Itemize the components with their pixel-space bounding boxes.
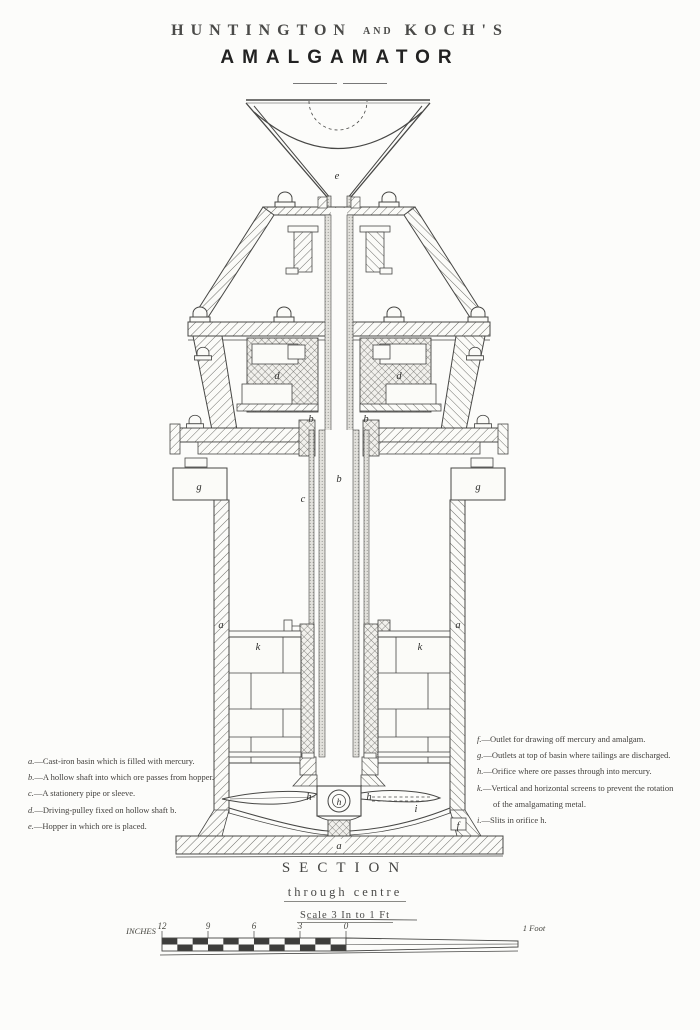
outlet-g-right bbox=[451, 458, 505, 500]
legend-item-c: c.—A stationery pipe or sleeve. bbox=[28, 785, 214, 801]
legend-left: a.—Cast-iron basin which is filled with … bbox=[28, 753, 214, 834]
legend-item-b: b.—A hollow shaft into which ore passes … bbox=[28, 769, 214, 785]
legend-item-g: g.—Outlets at top of basin where tailing… bbox=[477, 747, 673, 763]
label-pipe: c bbox=[301, 494, 306, 505]
label-shaft-bore: b bbox=[336, 474, 341, 485]
legend-item-d: d.—Driving-pulley fixed on hollow shaft … bbox=[28, 802, 214, 818]
legend-item-i: i.—Slits in orifice h. bbox=[477, 812, 673, 828]
label-basin-right: a bbox=[455, 620, 460, 631]
scale-foot-label: 1 Foot bbox=[523, 923, 546, 933]
label-pulley-right: d bbox=[396, 371, 402, 382]
label-blade-right: h bbox=[366, 792, 371, 803]
label-hub: h bbox=[337, 798, 342, 808]
scale-bar-inches bbox=[162, 938, 346, 951]
legend-item-a: a.—Cast-iron basin which is filled with … bbox=[28, 753, 214, 769]
label-outlet-right: g bbox=[475, 482, 480, 493]
label-hopper: e bbox=[335, 171, 340, 182]
label-screen-left: k bbox=[256, 642, 261, 653]
screens-right bbox=[364, 620, 450, 765]
label-shaft-right: b bbox=[363, 414, 368, 425]
legend-right: f.—Outlet for drawing off mercury and am… bbox=[477, 731, 673, 828]
scale-tick-12: 12 bbox=[158, 921, 168, 931]
label-outlet-left: g bbox=[196, 482, 201, 493]
legend-item-k: k.—Vertical and horizontal screens to pr… bbox=[477, 780, 673, 796]
caption-section: SECTION bbox=[235, 860, 455, 877]
scale-bar bbox=[160, 919, 518, 955]
scale-tick-9: 9 bbox=[206, 921, 211, 931]
basin-wall-left bbox=[214, 500, 229, 813]
engraving-page: HUNTINGTON AND KOCH'S AMALGAMATOR bbox=[0, 0, 700, 1030]
label-screen-right: k bbox=[418, 642, 423, 653]
caption-through-centre: through centre bbox=[235, 883, 455, 902]
legend-item-h: h.—Orifice where ore passes through into… bbox=[477, 763, 673, 779]
legend-item-e: e.—Hopper in which ore is placed. bbox=[28, 818, 214, 834]
hopper bbox=[246, 100, 430, 217]
label-blade-left: h bbox=[306, 792, 311, 803]
label-slits: i bbox=[415, 804, 418, 815]
section-caption: SECTION through centre Scale 3 In to 1 F… bbox=[235, 860, 455, 923]
screens-left bbox=[229, 620, 314, 765]
label-basin-left: a bbox=[218, 620, 223, 631]
outlet-g-left bbox=[173, 458, 227, 500]
caption-scale: Scale 3 In to 1 Ft bbox=[235, 905, 455, 923]
basin-wall-right bbox=[450, 500, 465, 813]
label-shaft-left: b bbox=[308, 414, 313, 425]
legend-item-k-cont: of the amalgamating metal. bbox=[477, 796, 673, 812]
hollow-shaft bbox=[309, 208, 369, 786]
label-base: a bbox=[336, 841, 341, 852]
scale-inches-label: INCHES bbox=[125, 926, 157, 936]
label-pulley-left: d bbox=[274, 371, 280, 382]
legend-item-f: f.—Outlet for drawing off mercury and am… bbox=[477, 731, 673, 747]
